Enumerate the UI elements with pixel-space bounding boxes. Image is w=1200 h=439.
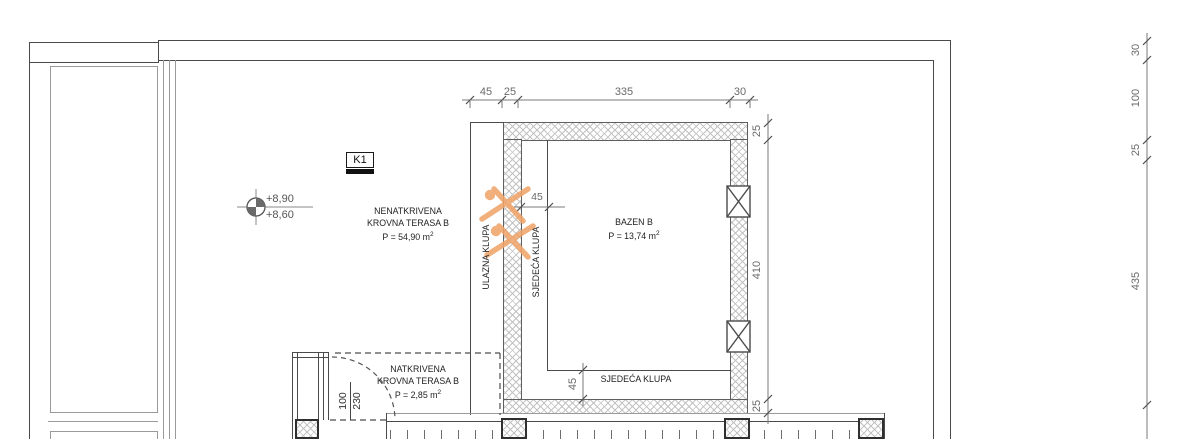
dimension-ticks <box>466 37 1151 417</box>
dim-far-right-25: 25 <box>1130 130 1142 170</box>
dim-pool-right-25b: 25 <box>751 386 763 426</box>
seat-bench-bottom-label: SJEDEĆA KLUPA <box>586 374 686 384</box>
level-upper-value: +8,90 <box>266 193 312 205</box>
dim-far-right-30: 30 <box>1130 30 1142 70</box>
pool-label: BAZEN B P = 13,74 m2 <box>572 216 696 242</box>
section-marker-k1: K1 <box>346 152 374 168</box>
covered-terrace-line1: NATKRIVENA <box>340 363 496 375</box>
swimmer-icon <box>487 226 533 257</box>
covered-terrace-label: NATKRIVENA KROVNA TERASA B P = 2,85 m2 <box>340 363 496 401</box>
dim-top-30: 30 <box>725 86 755 98</box>
floor-plan-canvas: K1 +8,90 +8,60 NENATKRIVENA KROVNA TERAS… <box>0 0 1200 439</box>
dim-pool-right-25a: 25 <box>751 111 763 151</box>
dim-far-right-435: 435 <box>1130 261 1142 301</box>
dim-far-right-100: 100 <box>1130 78 1142 118</box>
dim-top-25: 25 <box>495 86 525 98</box>
dimension-lines <box>462 33 1147 439</box>
uncovered-terrace-area: P = 54,90 m2 <box>330 229 486 243</box>
dim-bench-bottom-45: 45 <box>567 364 579 404</box>
covered-terrace-line2: KROVNA TERASA B <box>340 375 496 387</box>
dim-door-width: 100 <box>337 381 349 421</box>
dim-door-height: 230 <box>351 381 363 421</box>
seat-bench-left-label: SJEDEĆA KLUPA <box>531 217 543 307</box>
dim-pool-right-410: 410 <box>751 250 763 290</box>
uncovered-terrace-line2: KROVNA TERASA B <box>330 217 486 229</box>
level-lower-value: +8,60 <box>266 209 312 221</box>
dim-bench-top-45: 45 <box>524 191 550 203</box>
section-marker-k1-bar <box>346 169 374 174</box>
pool-name: BAZEN B <box>572 216 696 228</box>
uncovered-terrace-label: NENATKRIVENA KROVNA TERASA B P = 54,90 m… <box>330 205 486 243</box>
pool-area: P = 13,74 m2 <box>572 228 696 242</box>
covered-terrace-area: P = 2,85 m2 <box>340 387 496 401</box>
dim-top-335: 335 <box>604 86 644 98</box>
entry-bench-label: ULAZNA KLUPA <box>481 212 493 302</box>
uncovered-terrace-line1: NENATKRIVENA <box>330 205 486 217</box>
pool-column-box-icon <box>727 186 750 352</box>
